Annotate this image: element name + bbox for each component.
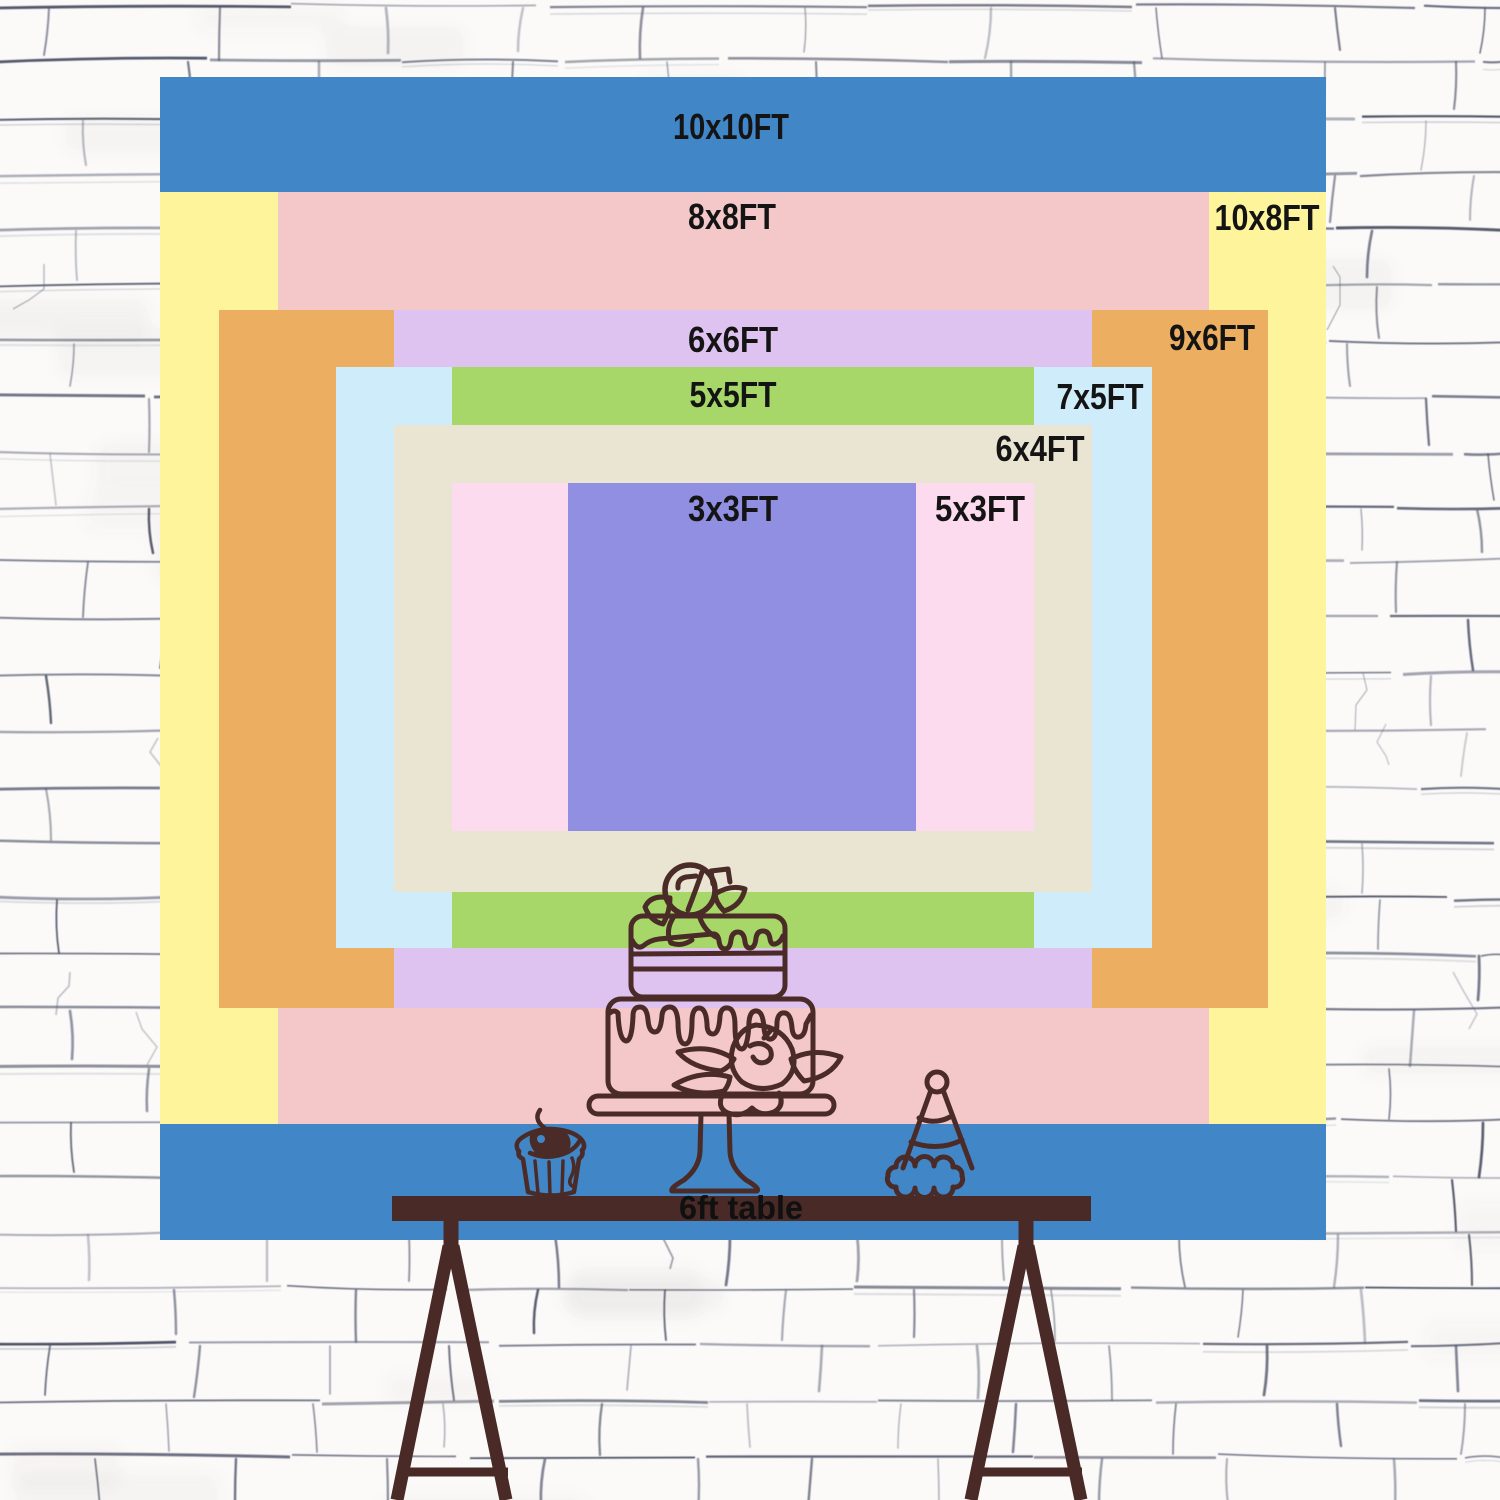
- svg-text:6x6FT: 6x6FT: [688, 319, 778, 360]
- svg-text:9x6FT: 9x6FT: [1169, 317, 1255, 358]
- svg-text:10x8FT: 10x8FT: [1215, 197, 1320, 238]
- svg-text:5x3FT: 5x3FT: [935, 488, 1025, 529]
- svg-text:3x3FT: 3x3FT: [688, 488, 778, 529]
- svg-text:7x5FT: 7x5FT: [1057, 376, 1144, 417]
- svg-text:6ft table: 6ft table: [679, 1189, 803, 1226]
- svg-text:8x8FT: 8x8FT: [688, 196, 776, 237]
- svg-text:10x10FT: 10x10FT: [673, 106, 789, 147]
- svg-text:6x4FT: 6x4FT: [996, 428, 1085, 469]
- svg-text:5x5FT: 5x5FT: [690, 374, 777, 415]
